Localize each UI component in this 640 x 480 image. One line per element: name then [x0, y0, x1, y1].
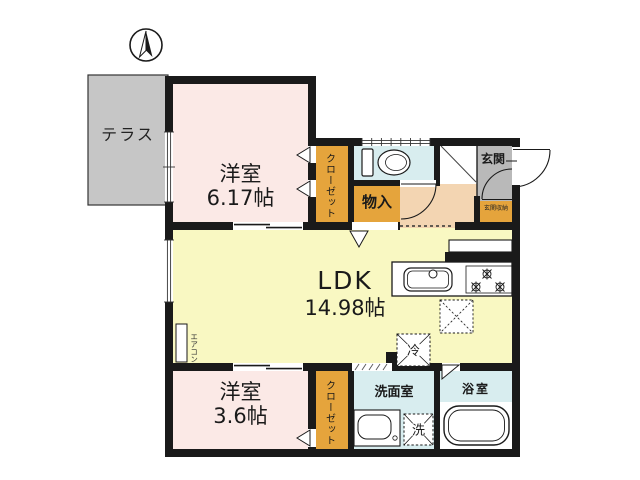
- ldk-label: LDK 14.98帖: [283, 267, 407, 320]
- front-door-gap: [512, 147, 520, 185]
- kitchen-back-counter: [449, 240, 512, 252]
- closet-bottom-label: クローゼット: [323, 377, 335, 449]
- bedroom2-label: 洋室 3.6帖: [173, 380, 308, 428]
- washing-machine: 洗: [404, 414, 433, 445]
- ldk-size: 14.98帖: [283, 296, 407, 320]
- bedroom2-name: 洋室: [173, 380, 308, 404]
- ldk-window: [165, 240, 173, 302]
- bedroom1-slide-gap: [233, 222, 303, 230]
- toilet-tank: [362, 149, 373, 176]
- storage-door-gap: [352, 222, 398, 230]
- washer-label: 洗: [412, 424, 425, 439]
- bathtub: [444, 406, 509, 445]
- bedroom1-name: 洋室: [173, 162, 308, 186]
- fridge-label: 冷: [407, 344, 420, 359]
- north-compass-icon: [130, 29, 162, 61]
- entrance-label: 玄関: [476, 153, 510, 167]
- toilet-fixture: [362, 149, 410, 176]
- refrigerator: 冷: [397, 334, 430, 366]
- terrace-label: テラス: [88, 126, 168, 144]
- bedroom1-label: 洋室 6.17帖: [173, 162, 308, 210]
- bathroom-label: 浴室: [440, 383, 512, 397]
- storage-label: 物入: [354, 194, 400, 211]
- closet-top-label: クローゼット: [323, 150, 335, 222]
- bedroom2-slide-gap: [233, 363, 303, 371]
- bedroom2-size: 3.6帖: [173, 404, 308, 428]
- ldk-name: LDK: [283, 267, 407, 296]
- kitchen-faucet: [429, 270, 437, 278]
- aircon-unit: [176, 324, 187, 362]
- washbasin: [354, 410, 400, 446]
- washroom-label: 洗面室: [354, 386, 434, 401]
- aircon-label: エアコン: [189, 327, 198, 369]
- washbasin-sink: [358, 415, 391, 439]
- washroom-door-gap: [352, 363, 392, 371]
- entrance-storage-label: 玄関収納: [479, 206, 513, 212]
- bedroom1-size: 6.17帖: [173, 186, 308, 210]
- floor-plan-drawing: 冷 洗: [0, 0, 640, 480]
- floor-plan: 冷 洗 テラス 洋室 6.17帖 クローゼット 物入 玄関: [0, 0, 640, 480]
- toilet-bowl-inner: [386, 155, 407, 171]
